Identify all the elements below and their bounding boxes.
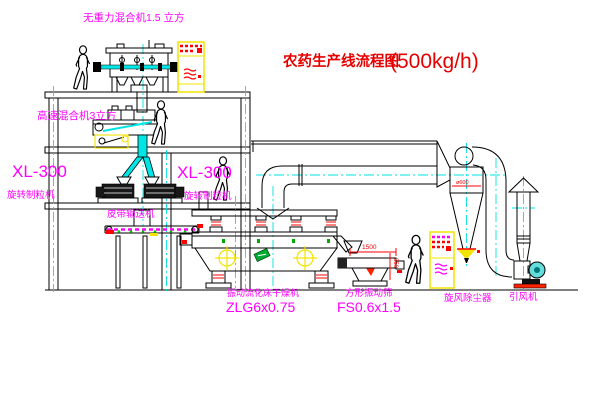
cyclone-diameter-dim: ø600	[456, 180, 469, 186]
label-dryer-name: 振动流化床干燥机	[227, 287, 299, 298]
label-center-granulator-name: 旋转制粒机	[184, 190, 232, 202]
cabinet-wave-symbol	[184, 69, 196, 79]
fluid-bed-dryer	[180, 192, 352, 288]
brand-plate	[254, 248, 270, 261]
process-flow-svg: 1500 350 ø600 农药生产线流程图 (500kg/h) 无重力混合机1…	[0, 0, 600, 403]
label-high-speed-mixer: 高速混合机3立方	[37, 109, 116, 122]
belt-conveyor	[105, 226, 199, 288]
cyclone-discharge-funnel	[457, 249, 476, 258]
body-valves	[222, 239, 330, 243]
label-left-granulator-model: XL-300	[12, 162, 67, 181]
diagram-title-capacity: (500kg/h)	[390, 50, 479, 73]
center-mark-left	[215, 246, 239, 270]
fan-base	[514, 284, 546, 288]
cabinet-wave-symbol	[435, 264, 447, 274]
label-dryer-model: ZLG6x0.75	[226, 299, 295, 315]
label-screen-name: 方形振动筛	[345, 287, 393, 299]
worker-top-floor	[74, 46, 90, 89]
exhaust-duct	[251, 141, 450, 219]
label-gravity-free-mixer: 无重力混合机1.5 立方	[83, 11, 185, 24]
control-cabinet-top	[178, 42, 204, 92]
screen-height-dim: 350	[392, 258, 398, 269]
floor-slab-mid	[45, 147, 250, 153]
label-center-granulator-model: XL-300	[177, 163, 232, 182]
control-cabinet-right	[430, 232, 454, 288]
gravity-free-mixer	[93, 40, 178, 92]
drop-pipe-upper	[137, 92, 147, 112]
label-left-granulator-name: 旋转制粒机	[7, 189, 55, 201]
label-fan: 引风机	[509, 291, 538, 303]
process-flow-drawing: 1500 350 ø600 农药生产线流程图 (500kg/h) 无重力混合机1…	[0, 0, 600, 403]
induced-draft-fan	[514, 261, 546, 288]
label-cyclone: 旋风除尘器	[444, 292, 492, 304]
worker-second-floor	[152, 101, 168, 144]
screen-length-dim: 1500	[362, 244, 377, 251]
center-mark-right	[293, 246, 317, 270]
worker-ground-floor	[406, 235, 423, 283]
label-screen-model: FS0.6x1.5	[337, 299, 401, 315]
diagram-title: 农药生产线流程图	[282, 52, 399, 70]
duct-reducer	[437, 141, 450, 187]
label-belt-conveyor: 皮带输送机	[107, 208, 155, 220]
granulator-left	[96, 177, 138, 203]
